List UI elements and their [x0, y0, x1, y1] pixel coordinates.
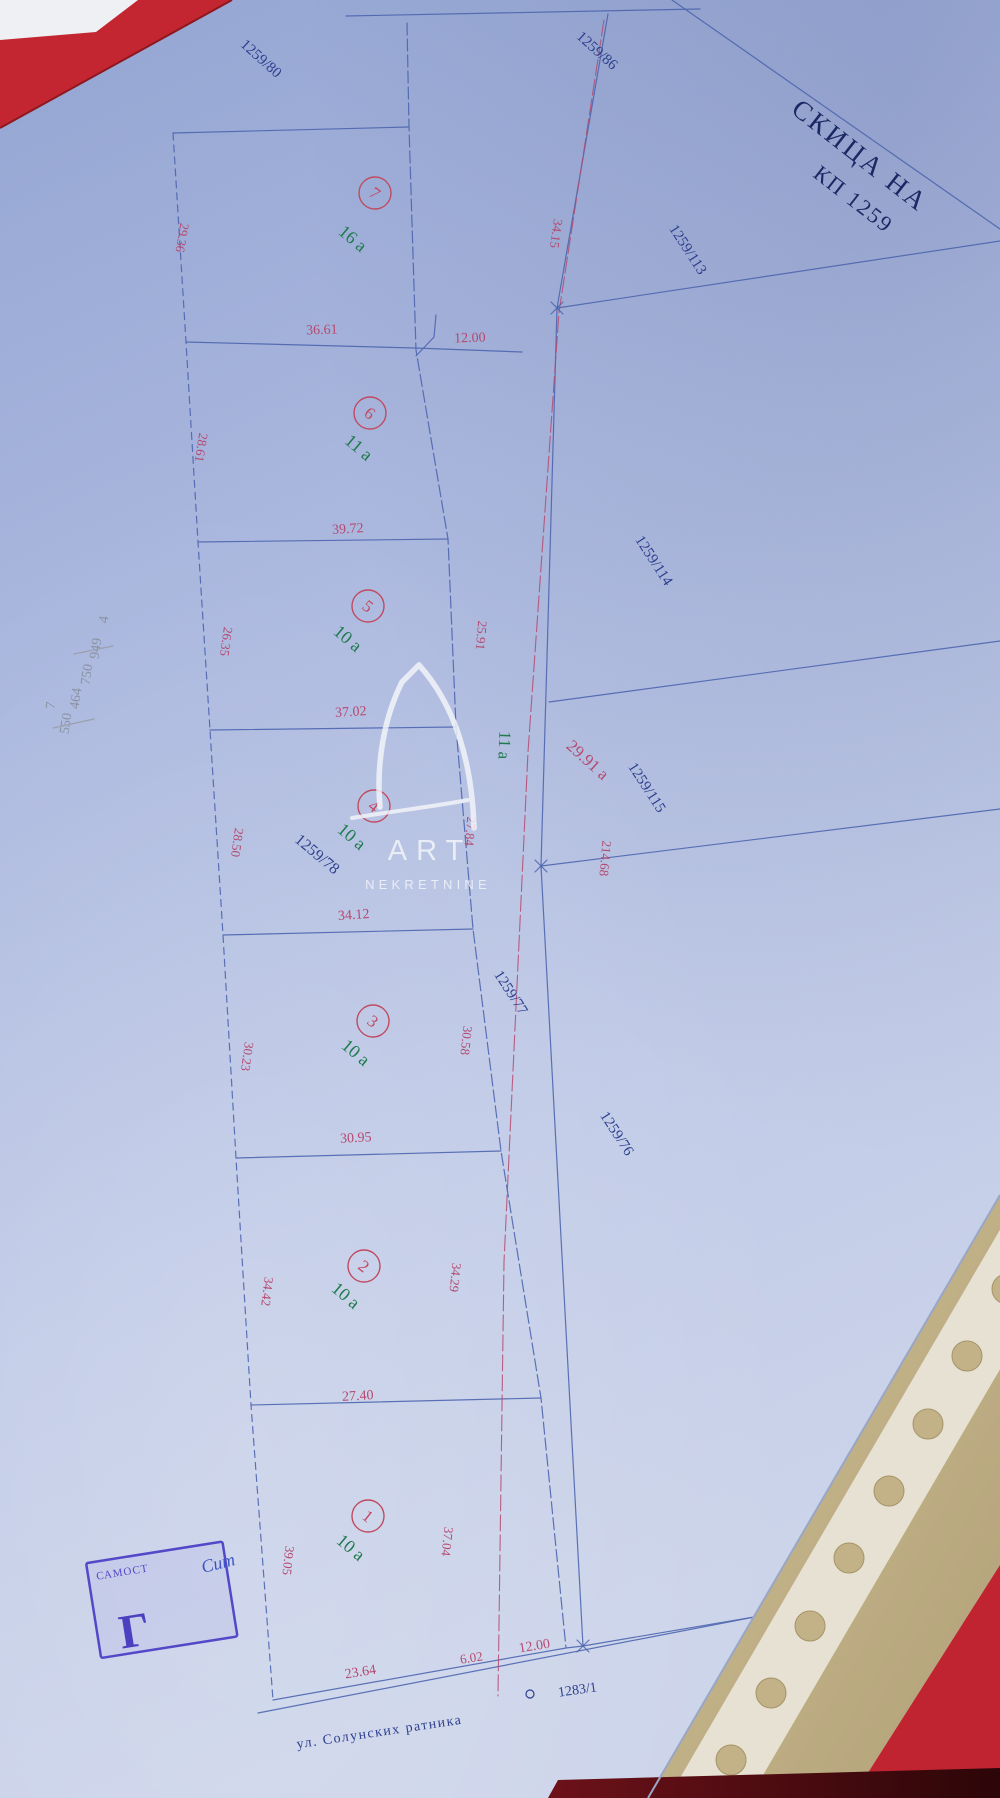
plot-bottom-dim: 39.72 [332, 521, 364, 538]
road-width-top-dim: 12.00 [454, 330, 486, 346]
sketch-canvas: 7 16 a 29.36 36.61 12.00 34.15 6 11 a 28… [0, 0, 1000, 1798]
pencil-note: 464 [68, 687, 86, 710]
plot-right-dim: 37.04 [438, 1526, 456, 1557]
plot-bottom-dim: 37.02 [335, 704, 367, 721]
road-width-label: 11 a [494, 731, 514, 760]
plot-bottom-dim: 36.61 [306, 322, 338, 338]
plot-right-dim: 34.29 [446, 1262, 464, 1293]
cadastral-sketch-photo: 7 16 a 29.36 36.61 12.00 34.15 6 11 a 28… [0, 0, 1000, 1798]
plot-right-dim: 25.91 [473, 620, 490, 650]
plot-bottom-dim: 27.40 [342, 1388, 374, 1405]
plot-bottom-dim: 30.95 [340, 1130, 372, 1147]
watermark-brand-text: ART [388, 835, 472, 867]
plot-bottom-dim: 34.12 [338, 907, 370, 924]
plot-left-dim: 39.05 [279, 1545, 297, 1576]
plot-right-dim: 30.58 [457, 1025, 475, 1056]
pencil-note: 750 [79, 663, 97, 686]
road-length-dim: 214.68 [596, 840, 614, 877]
watermark-sub-text: NEKRETNINE [365, 877, 491, 892]
